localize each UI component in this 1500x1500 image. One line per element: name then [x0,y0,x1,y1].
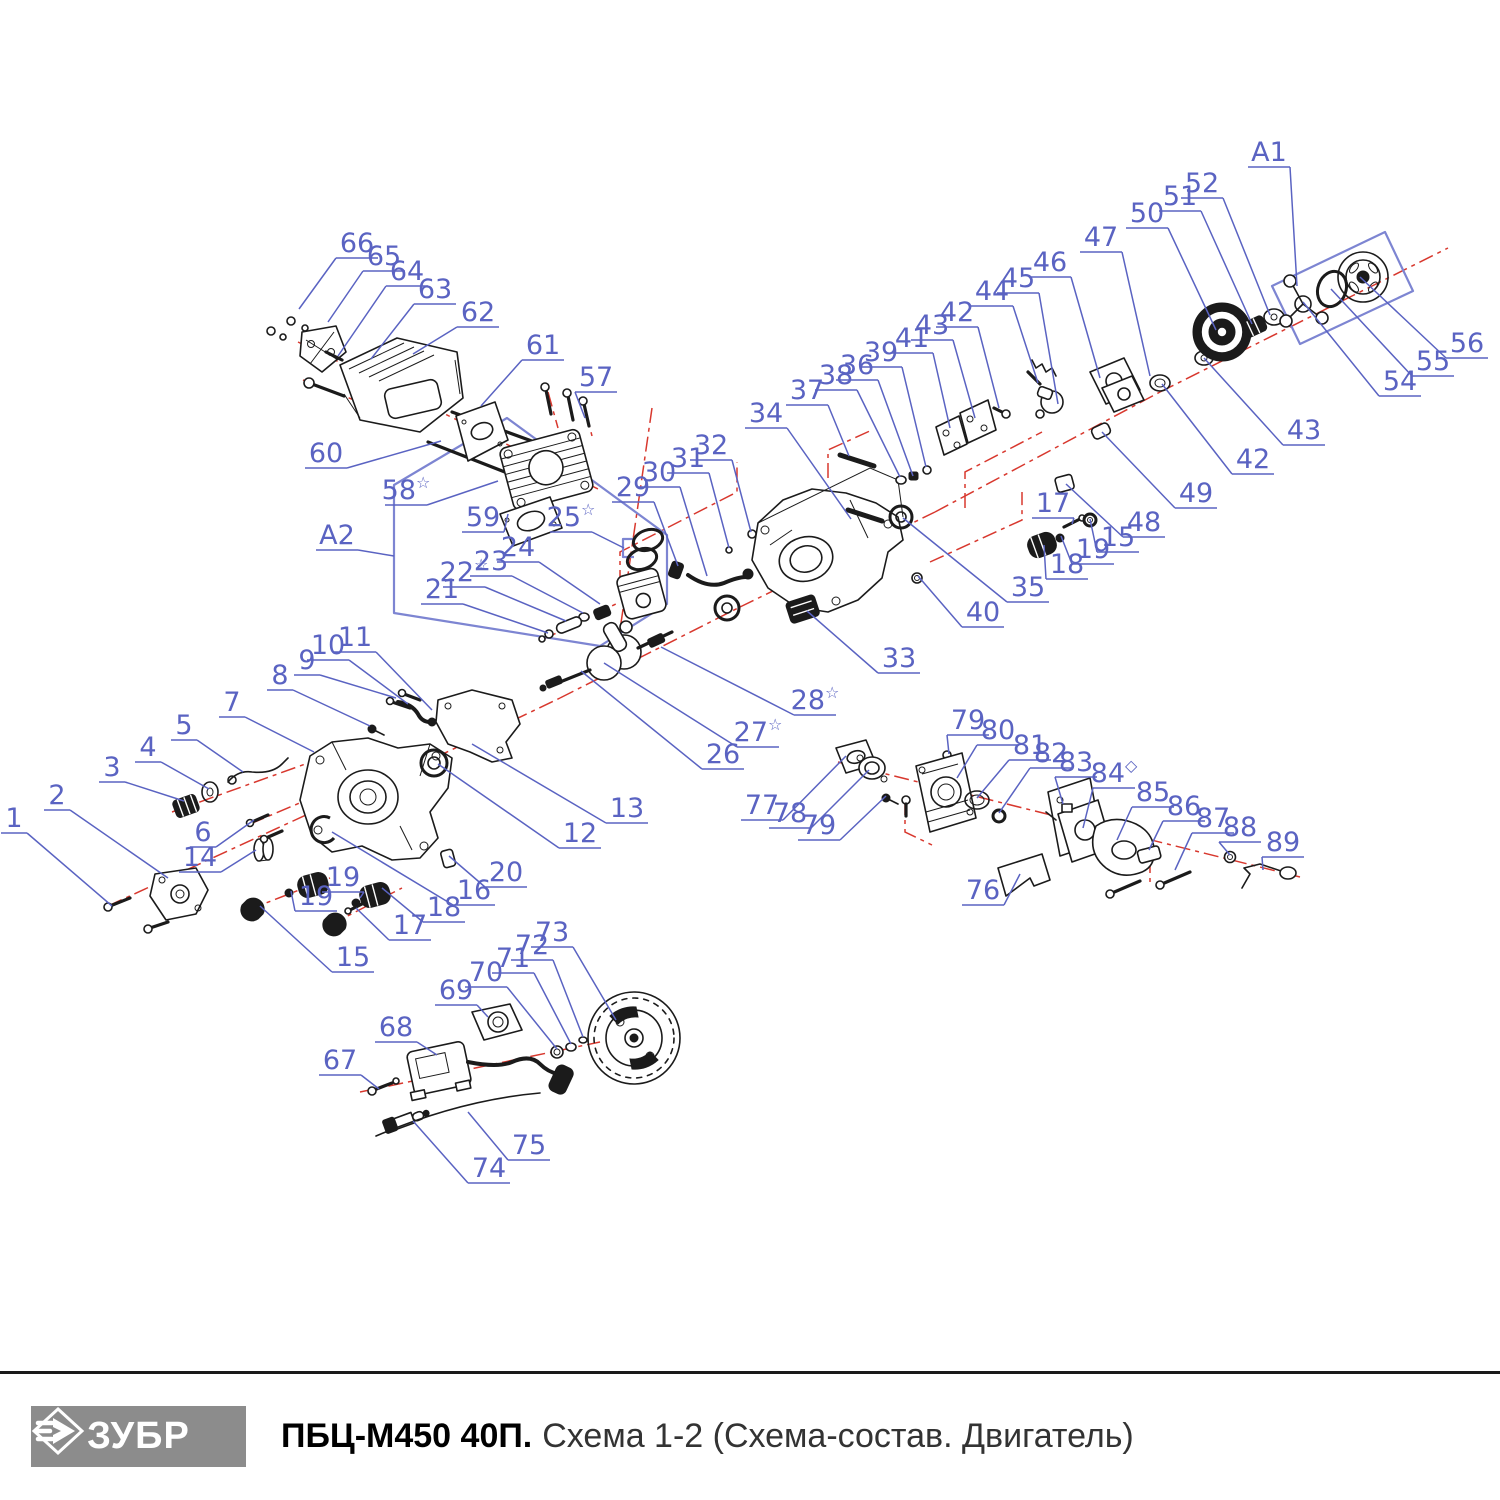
svg-text:20: 20 [489,857,523,888]
svg-text:60: 60 [309,438,343,469]
svg-text:73: 73 [535,917,569,948]
crankcase-gasket [436,690,520,762]
svg-text:54: 54 [1383,366,1417,397]
muffler-body [340,338,463,432]
assembly-box-a1 [1272,232,1413,344]
callout-46: 46 [1029,247,1100,378]
flywheel [588,992,680,1084]
callout-35: 35 [903,518,1049,603]
svg-text:27☆: 27☆ [734,715,783,748]
bottom-plate [998,854,1050,896]
svg-text:84◇: 84◇ [1091,756,1138,789]
callout-68: 68 [375,1012,437,1055]
svg-text:85: 85 [1136,777,1170,808]
svg-text:43: 43 [1287,415,1321,446]
svg-text:66: 66 [340,228,374,259]
svg-text:76: 76 [966,875,1000,906]
callout-A1: A1 [1248,137,1297,286]
callout-47: 47 [1080,222,1150,376]
callout-61: 61 [481,330,564,406]
svg-text:17: 17 [1036,488,1070,519]
svg-text:24: 24 [501,532,535,563]
callout-45: 45 [997,263,1058,404]
svg-text:43: 43 [915,310,949,341]
callout-17: 17 [1032,488,1074,524]
svg-text:35: 35 [1011,572,1045,603]
svg-text:75: 75 [512,1130,546,1161]
svg-text:58☆: 58☆ [382,473,431,506]
svg-text:79: 79 [802,810,836,841]
svg-text:32: 32 [694,430,728,461]
svg-text:46: 46 [1033,247,1067,278]
callout-55: 55 [1331,289,1454,377]
callout-52: 52 [1181,168,1270,315]
svg-text:59: 59 [466,502,500,533]
callout-74: 74 [413,1121,510,1184]
footer-divider [0,1371,1500,1374]
svg-text:25☆: 25☆ [547,500,596,533]
callout-11: 11 [334,622,432,710]
svg-text:62: 62 [461,297,495,328]
model-name: ПБЦ-М450 40П. [281,1417,532,1456]
muffler-bracket [300,326,346,372]
callout-26: 26 [581,671,744,770]
svg-text:55: 55 [1416,346,1450,377]
callout-89: 89 [1262,827,1304,870]
callout-60: 60 [305,438,441,469]
svg-text:61: 61 [526,330,560,361]
svg-text:74: 74 [472,1153,506,1184]
callout-5: 5 [171,710,243,772]
svg-text:A1: A1 [1251,137,1287,168]
svg-text:17: 17 [393,910,427,941]
svg-text:40: 40 [966,597,1000,628]
svg-text:42: 42 [1236,444,1270,475]
callout-49: 49 [1102,432,1217,509]
callout-79: 79 [798,796,886,841]
callout-25: 25☆ [547,500,624,548]
svg-text:11: 11 [338,622,372,653]
callout-67: 67 [319,1045,379,1089]
svg-text:88: 88 [1223,812,1257,843]
callout-15: 15 [260,906,374,973]
svg-text:47: 47 [1084,222,1118,253]
svg-text:2: 2 [48,780,65,811]
svg-text:18: 18 [427,892,461,923]
callout-17: 17 [356,908,431,941]
bearing [715,596,739,620]
callout-39: 39 [860,337,926,467]
svg-text:67: 67 [323,1045,357,1076]
callout-42: 42 [1162,384,1274,475]
svg-text:3: 3 [103,752,120,783]
svg-text:45: 45 [1001,263,1035,294]
svg-text:A2: A2 [319,520,355,551]
svg-text:14: 14 [183,842,217,873]
svg-text:89: 89 [1266,827,1300,858]
svg-text:19: 19 [326,862,360,893]
heat-shield [916,753,976,832]
svg-text:68: 68 [379,1012,413,1043]
svg-text:38: 38 [819,360,853,391]
callouts-layer: 1234567891011121314151617181919202122☆23… [1,137,1488,1184]
callout-24: 24 [497,532,600,604]
svg-text:28☆: 28☆ [791,683,840,716]
callout-30: 30 [638,457,707,576]
sheet-subtitle: Схема 1-2 (Схема-состав. Двигатель) [542,1417,1134,1456]
zubr-logo-icon [31,1406,85,1456]
callout-62: 62 [413,297,499,354]
svg-text:57: 57 [579,362,613,393]
svg-text:5: 5 [175,710,192,741]
callout-8: 8 [267,660,370,726]
callout-43: 43 [1204,358,1325,446]
svg-text:16: 16 [457,875,491,906]
svg-text:52: 52 [1185,168,1219,199]
brand-name: ЗУБР [87,1415,190,1458]
svg-text:8: 8 [271,660,288,691]
svg-text:50: 50 [1130,198,1164,229]
svg-text:12: 12 [563,818,597,849]
callout-28: 28☆ [661,647,839,716]
callout-A2: A2 [316,520,394,556]
svg-text:13: 13 [610,793,644,824]
svg-text:33: 33 [882,643,916,674]
air-box [1093,819,1155,875]
callout-40: 40 [918,576,1004,628]
svg-text:80: 80 [981,715,1015,746]
callout-88: 88 [1219,812,1261,855]
oil-pump-assembly [1028,303,1284,418]
drawing-title: ПБЦ-М450 40П. Схема 1-2 (Схема-состав. Д… [281,1406,1134,1467]
parts-diagram-page: 1234567891011121314151617181919202122☆23… [0,0,1500,1500]
callout-7: 7 [219,687,314,752]
svg-text:19: 19 [1076,534,1110,565]
callout-33: 33 [807,611,920,674]
ignition-assembly [368,992,680,1136]
svg-text:7: 7 [223,687,240,718]
callout-51: 51 [1159,181,1252,324]
zubr-logo: ЗУБР [31,1406,246,1467]
svg-text:49: 49 [1179,478,1213,509]
plug [440,849,456,869]
svg-text:56: 56 [1450,328,1484,359]
svg-text:15: 15 [336,942,370,973]
svg-text:34: 34 [749,398,783,429]
parts-layer [104,252,1388,1136]
callout-57: 57 [575,362,617,418]
svg-text:1: 1 [5,803,22,834]
callout-19: 19 [322,862,364,898]
svg-text:4: 4 [139,732,156,763]
callout-27: 27☆ [604,663,782,748]
callout-1: 1 [1,803,112,906]
mount-bracket [150,868,208,920]
svg-text:83: 83 [1059,747,1093,778]
exploded-diagram: 1234567891011121314151617181919202122☆23… [0,0,1500,1360]
